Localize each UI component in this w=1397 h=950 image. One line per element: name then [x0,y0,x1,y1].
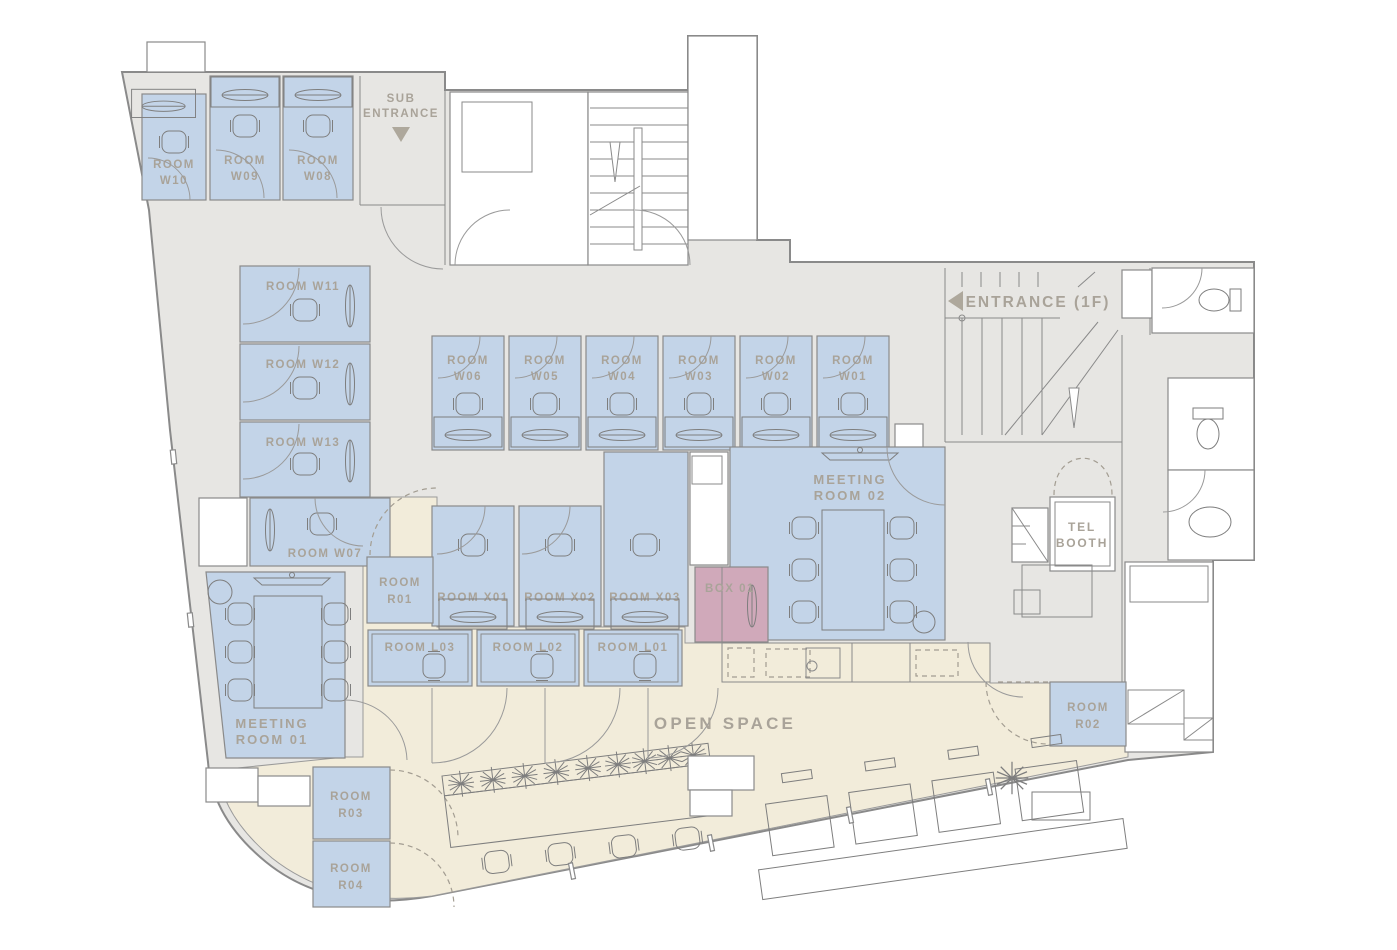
room-w10-label-line2: W10 [160,175,188,187]
tel-booth-label-line1: TEL [1068,520,1096,534]
room-w13-label: ROOM W13 [266,437,341,449]
room-r01-label-line2: R01 [387,594,413,606]
room-w08-label-line1: ROOM [297,155,339,167]
tel-booth-label-line2: BOOTH [1056,536,1108,550]
room-w12: ROOM W12 [240,344,370,420]
room-w09-label-line2: W09 [231,171,259,183]
room-r02-label-line2: R02 [1075,719,1101,731]
room-w11-label: ROOM W11 [266,281,340,293]
room-l01: ROOM L01 [584,630,682,686]
meeting-room-02-label-line1: MEETING [813,472,886,487]
box-01-label: BOX 01 [705,583,755,595]
room-x01: ROOM X01 [432,506,514,629]
room-l02-label: ROOM L02 [493,642,564,654]
cabinet [895,424,923,448]
room-x02-label: ROOM X02 [524,592,595,604]
room-w08-label-line2: W08 [304,171,332,183]
floor-plan: SUB ENTRANCE ENTRANCE (1F) [0,0,1397,950]
room-l03-label: ROOM L03 [385,642,456,654]
room-r04-label-line1: ROOM [330,863,372,875]
room-l02: ROOM L02 [477,630,579,686]
room-x03: ROOM X03 [604,452,688,629]
room-x03-label: ROOM X03 [609,592,680,604]
room-w11: ROOM W11 [240,266,370,342]
room-w08: ROOM W08 [283,76,353,200]
meeting-room-01-label-line1: MEETING [235,716,308,731]
room-w10: ROOM W10 [132,89,206,200]
room-w05: ROOM W05 [509,336,581,450]
roof-stub [147,42,205,72]
room-w09-label-line1: ROOM [224,155,266,167]
kitchen-counter [722,643,990,682]
upper-core [450,36,757,265]
meeting-room-02-label-line2: ROOM 02 [814,488,887,503]
service-shaft [1125,562,1213,752]
box-01: BOX 01 [695,567,768,642]
room-r01-label-line1: ROOM [379,577,421,589]
room-w04: ROOM W04 [586,336,658,450]
room-r04-label-line2: R04 [338,880,364,892]
room-w13: ROOM W13 [240,422,370,497]
room-l03: ROOM L03 [368,630,472,686]
room-w03: ROOM W03 [663,336,735,450]
room-x02: ROOM X02 [519,506,601,629]
room-w10-label-line1: ROOM [153,159,195,171]
meeting-room-01-label-line2: ROOM 01 [236,732,309,747]
room-w07-label: ROOM W07 [288,548,363,560]
room-l01-label: ROOM L01 [598,642,669,654]
room-w07: ROOM W07 [199,498,390,566]
room-w06: ROOM W06 [432,336,504,450]
room-r02-label-line1: ROOM [1067,702,1109,714]
room-r01: ROOM R01 [367,557,433,623]
room-r03-label-line2: R03 [338,808,364,820]
sub-entrance-label-line2: ENTRANCE [363,108,439,120]
room-w09: ROOM W09 [210,76,280,200]
open-space-label: OPEN SPACE [654,714,796,733]
entrance-label: ENTRANCE (1F) [966,294,1111,311]
sub-entrance-label-line1: SUB [387,93,416,105]
room-w02: ROOM W02 [740,336,812,450]
room-w01: ROOM W01 [817,336,889,450]
room-r03-label-line1: ROOM [330,791,372,803]
meeting-room-01: MEETING ROOM 01 [206,572,351,758]
room-x01-label: ROOM X01 [437,592,508,604]
room-w12-label: ROOM W12 [266,359,341,371]
